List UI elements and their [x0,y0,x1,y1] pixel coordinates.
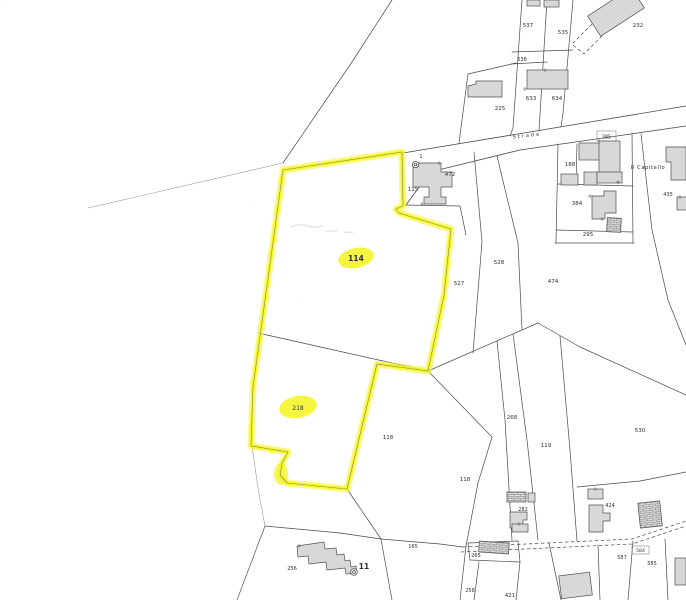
building [468,81,502,97]
building [666,147,686,180]
parcel-label: 633 [526,96,537,102]
parcel-label: 118 [460,477,471,483]
building [607,218,622,233]
parcel-label: 165 [408,544,418,550]
road-line-upper [403,106,686,153]
building [512,524,528,532]
parcel-label: 295 [583,232,594,238]
parcel-label: 587 [617,555,627,561]
parcel-label: 474 [548,279,559,285]
scan-smudges [0,0,431,323]
parcel-label: 527 [454,281,465,287]
building-label-11: 11 [359,562,369,571]
building [589,505,610,532]
parcel-label: 258 [465,588,475,594]
well-symbol [412,161,418,167]
parcel-label: 435 [663,192,673,198]
building [584,172,597,185]
parcel-label: 225 [495,106,506,112]
building [528,493,535,502]
parcel-label: 282 [518,507,528,513]
building [527,70,568,89]
parcel-label: 634 [552,96,563,102]
building [579,143,601,160]
parcel-label: 188 [565,162,576,168]
building [507,492,526,502]
building [638,501,662,528]
locality-label: Il Capitello [631,165,666,171]
parcel-label: 265 [471,553,481,559]
parcel-label: 424 [605,503,615,509]
dashed-paths [461,24,686,552]
parcel-label: 119 [541,443,552,449]
road-label: Strada [512,131,541,140]
building [559,572,593,599]
parcel-label-218: 218 [292,405,304,412]
building [561,174,578,185]
parcel-label: 118 [383,435,394,441]
parcel-label: 115 [408,187,419,193]
building [413,163,452,204]
parcel-label: 537 [523,23,534,29]
cadastral-map: 1142181154721225633634538537535232385188… [0,0,686,600]
building [677,197,686,210]
parcel-label: 530 [635,428,646,434]
building [527,0,540,6]
highlight-layer [251,152,451,489]
parcel-label: 584 [636,548,645,554]
buildings-layer [297,0,686,599]
parcel-label: 384 [572,201,583,207]
building [297,542,357,574]
building [479,541,510,554]
parcel-label: 256 [287,566,297,572]
parcel-labels-layer: 1142181154721225633634538537535232385188… [287,23,673,599]
parcel-label: 1 [419,154,422,160]
parcel-label: 472 [445,172,456,178]
well-symbol [351,569,358,576]
parcel-label: 585 [647,561,657,567]
parcel-label: 385 [602,135,611,141]
survey-tick-marks [297,68,682,548]
building [544,0,559,7]
boundary-line [88,163,283,208]
parcel-label-114: 114 [348,254,364,263]
parcel-label: 528 [494,260,505,266]
building [588,489,603,499]
parcel-label: 538 [517,57,527,63]
parcel-label: 421 [505,593,516,599]
parcel-label: 535 [558,30,569,36]
parcel-label: 232 [633,23,644,29]
building [675,558,686,585]
cadastral-map-page: 1142181154721225633634538537535232385188… [0,0,686,600]
building [588,0,645,36]
boundary-line [283,0,392,163]
building [592,191,616,219]
parcel-label: 268 [507,415,518,421]
highlighted-parcel-outline [251,152,451,489]
